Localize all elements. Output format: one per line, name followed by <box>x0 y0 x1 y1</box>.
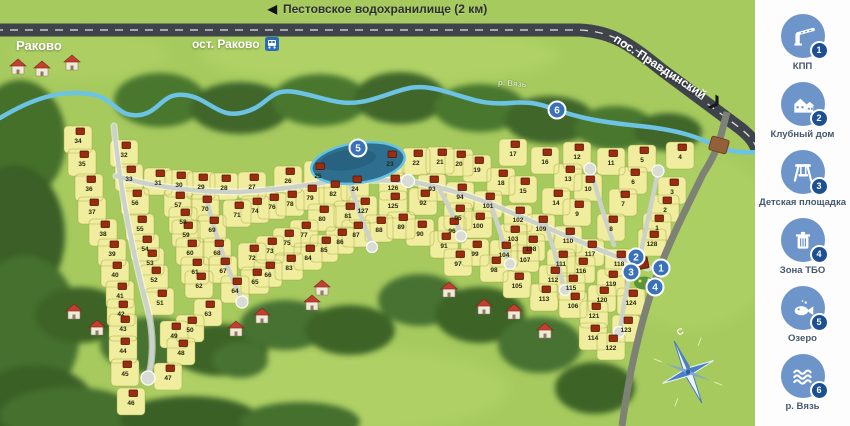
plot-house-icon-70 <box>203 196 212 203</box>
svg-text:5: 5 <box>355 144 361 155</box>
plot-house-icon-73 <box>268 238 277 245</box>
plot-number-81: 81 <box>344 213 352 220</box>
banner-text: Пестовское водохранилище (2 км) <box>283 2 487 16</box>
plot-number-64: 64 <box>231 288 239 295</box>
plot-number-19: 19 <box>473 167 481 174</box>
plot-house-icon-35 <box>80 151 89 158</box>
plot-number-125: 125 <box>388 203 399 210</box>
legend-icon-circle: 4 <box>781 218 825 262</box>
legend-sidebar: 1КПП2Клубный дом3Детская площадка4Зона Т… <box>755 0 850 426</box>
plot-number-8: 8 <box>609 226 613 233</box>
plot-house-icon-4 <box>678 144 687 151</box>
top-banner: ◀Пестовское водохранилище (2 км) <box>0 2 755 16</box>
legend-icon-circle: 5 <box>781 286 825 330</box>
plot-house-icon-24 <box>353 176 362 183</box>
plot-number-79: 79 <box>306 195 314 202</box>
plot-house-icon-95 <box>456 205 465 212</box>
plot-house-icon-84 <box>306 245 315 252</box>
plot-number-117: 117 <box>585 251 596 258</box>
plot-number-14: 14 <box>552 200 560 207</box>
plot-house-icon-50 <box>188 317 197 324</box>
plot-number-26: 26 <box>284 178 292 185</box>
legend-number-badge: 4 <box>810 245 829 264</box>
plot-house-icon-97 <box>456 251 465 258</box>
legend-item-6: 6р. Вязь <box>755 354 850 412</box>
plot-house-icon-66 <box>266 262 275 269</box>
plot-house-icon-75 <box>285 230 294 237</box>
plot-number-2: 2 <box>663 207 667 214</box>
plot-house-icon-115 <box>569 275 578 282</box>
plot-house-icon-36 <box>87 176 96 183</box>
plot-house-icon-103 <box>511 226 520 233</box>
village-label: Раково <box>16 38 62 53</box>
plot-number-17: 17 <box>509 151 517 158</box>
plot-house-icon-55 <box>138 216 147 223</box>
legend-number-badge: 1 <box>810 41 829 60</box>
plot-house-icon-99 <box>473 241 482 248</box>
plot-number-124: 124 <box>626 300 637 307</box>
plot-number-75: 75 <box>283 240 291 247</box>
legend-icon-circle: 3 <box>781 150 825 194</box>
plot-number-34: 34 <box>74 138 82 145</box>
plot-number-123: 123 <box>621 327 632 334</box>
plot-house-icon-122 <box>609 335 618 342</box>
plot-house-icon-76 <box>270 194 279 201</box>
plot-house-icon-117 <box>588 241 597 248</box>
plot-number-121: 121 <box>589 313 600 320</box>
map-marker-3[interactable]: 3 <box>623 264 640 281</box>
plot-house-icon-88 <box>377 217 386 224</box>
plot-house-icon-7 <box>621 191 630 198</box>
plot-number-67: 67 <box>219 268 227 275</box>
plot-number-47: 47 <box>164 375 172 382</box>
plot-house-icon-71 <box>235 202 244 209</box>
plot-number-106: 106 <box>568 303 579 310</box>
plot-number-24: 24 <box>351 186 359 193</box>
plot-house-icon-72 <box>250 245 259 252</box>
plot-number-10: 10 <box>584 186 592 193</box>
plot-house-icon-48 <box>179 340 188 347</box>
plot-number-13: 13 <box>564 176 572 183</box>
plot-number-49: 49 <box>170 333 178 340</box>
plot-number-55: 55 <box>136 226 144 233</box>
plot-house-icon-47 <box>166 365 175 372</box>
svg-text:1: 1 <box>658 264 664 275</box>
plot-house-icon-54 <box>143 236 152 243</box>
plot-number-72: 72 <box>248 255 256 262</box>
plot-house-icon-85 <box>322 237 331 244</box>
plot-house-icon-9 <box>575 201 584 208</box>
plot-number-120: 120 <box>597 297 608 304</box>
plot-house-icon-25 <box>316 163 325 170</box>
plot-number-52: 52 <box>150 277 158 284</box>
plot-house-icon-69 <box>210 217 219 224</box>
plot-number-103: 103 <box>508 236 519 243</box>
plot-house-icon-118 <box>617 251 626 258</box>
river-label: р. Вязь <box>498 78 527 89</box>
plot-house-icon-61 <box>193 259 202 266</box>
plot-number-7: 7 <box>621 201 625 208</box>
plot-number-127: 127 <box>358 208 369 215</box>
plot-number-29: 29 <box>197 184 205 191</box>
plot-number-105: 105 <box>512 283 523 290</box>
plot-house-icon-108 <box>529 236 538 243</box>
plot-number-31: 31 <box>154 180 162 187</box>
plot-house-icon-126 <box>391 175 400 182</box>
plot-house-icon-42 <box>119 301 128 308</box>
plot-house-icon-89 <box>399 214 408 221</box>
plot-number-33: 33 <box>125 176 133 183</box>
plot-number-46: 46 <box>127 400 135 407</box>
plot-number-59: 59 <box>182 232 190 239</box>
plot-number-28: 28 <box>220 185 228 192</box>
plot-number-9: 9 <box>575 211 579 218</box>
plot-house-icon-27 <box>250 174 259 181</box>
plot-house-icon-20 <box>457 151 466 158</box>
plot-number-95: 95 <box>454 215 462 222</box>
plot-number-90: 90 <box>416 231 424 238</box>
plot-number-113: 113 <box>539 296 550 303</box>
plot-number-71: 71 <box>233 212 241 219</box>
plot-number-54: 54 <box>141 246 149 253</box>
legend-item-2: 2Клубный дом <box>755 82 850 140</box>
plot-number-68: 68 <box>213 250 221 257</box>
legend-item-label: Зона ТБО <box>780 266 825 276</box>
legend-number-badge: 2 <box>810 109 829 128</box>
plot-number-36: 36 <box>85 186 93 193</box>
plot-number-53: 53 <box>146 260 154 267</box>
plot-house-icon-111 <box>559 251 568 258</box>
plot-number-22: 22 <box>412 160 420 167</box>
plot-house-icon-58 <box>181 209 190 216</box>
plot-number-65: 65 <box>251 279 259 286</box>
plot-house-icon-74 <box>253 198 262 205</box>
plot-number-11: 11 <box>608 160 615 167</box>
plot-number-98: 98 <box>490 267 498 274</box>
bus-stop-text: ост. Раково <box>192 37 260 51</box>
plot-number-107: 107 <box>520 257 531 264</box>
plot-number-122: 122 <box>606 345 617 352</box>
plot-number-119: 119 <box>606 281 617 288</box>
legend-item-5: 5Озеро <box>755 286 850 344</box>
plot-number-91: 91 <box>440 243 448 250</box>
plot-number-42: 42 <box>117 311 125 318</box>
plot-number-109: 109 <box>536 226 547 233</box>
plot-house-icon-40 <box>113 262 122 269</box>
plot-house-icon-110 <box>566 228 575 235</box>
plot-number-60: 60 <box>186 250 194 257</box>
plot-house-icon-2 <box>663 197 672 204</box>
plot-number-21: 21 <box>436 159 444 166</box>
plot-house-icon-125 <box>391 193 400 200</box>
plot-number-82: 82 <box>329 191 337 198</box>
plot-house-icon-3 <box>670 179 679 186</box>
plot-number-89: 89 <box>397 224 405 231</box>
plot-house-icon-94 <box>458 184 467 191</box>
plot-number-126: 126 <box>388 185 399 192</box>
plot-number-61: 61 <box>191 269 199 276</box>
plot-number-48: 48 <box>177 350 185 357</box>
plot-house-icon-123 <box>624 317 633 324</box>
plot-number-85: 85 <box>320 247 328 254</box>
plot-number-128: 128 <box>647 241 658 248</box>
svg-text:6: 6 <box>554 106 560 117</box>
plot-number-100: 100 <box>473 223 484 230</box>
plot-house-icon-51 <box>158 290 167 297</box>
legend-item-3: 3Детская площадка <box>755 150 850 208</box>
plot-number-25: 25 <box>314 173 322 180</box>
plot-number-92: 92 <box>419 200 427 207</box>
svg-text:2: 2 <box>633 253 639 264</box>
legend-icon-circle: 1 <box>781 14 825 58</box>
plot-number-40: 40 <box>111 272 119 279</box>
plot-number-43: 43 <box>119 326 127 333</box>
plot-number-23: 23 <box>386 161 394 168</box>
plot-number-114: 114 <box>588 335 599 342</box>
plot-house-icon-37 <box>90 199 99 206</box>
plot-house-icon-53 <box>148 250 157 257</box>
legend-icon-circle: 2 <box>781 82 825 126</box>
plot-number-73: 73 <box>266 248 274 255</box>
plot-number-78: 78 <box>286 201 294 208</box>
plot-house-icon-68 <box>215 240 224 247</box>
plot-house-icon-56 <box>133 190 142 197</box>
plot-house-icon-93 <box>430 176 439 183</box>
plot-number-112: 112 <box>548 277 559 284</box>
plot-number-86: 86 <box>336 239 344 246</box>
plot-house-icon-32 <box>122 142 131 149</box>
plot-house-icon-101 <box>486 193 495 200</box>
plot-number-76: 76 <box>268 204 276 211</box>
plot-number-56: 56 <box>131 200 139 207</box>
map-marker-4[interactable]: 4 <box>647 279 664 296</box>
plot-house-icon-78 <box>288 191 297 198</box>
plot-house-icon-31 <box>156 170 165 177</box>
legend-item-label: Озеро <box>788 334 817 344</box>
plot-number-41: 41 <box>116 293 124 300</box>
plot-house-icon-119 <box>609 271 618 278</box>
legend-number-badge: 6 <box>810 381 829 400</box>
plot-number-83: 83 <box>285 265 293 272</box>
plot-number-102: 102 <box>513 217 524 224</box>
plot-number-99: 99 <box>471 251 479 258</box>
plot-house-icon-86 <box>338 229 347 236</box>
legend-number-badge: 5 <box>810 313 829 332</box>
plot-house-icon-81 <box>346 203 355 210</box>
legend-item-1: 1КПП <box>755 14 850 72</box>
plot-house-icon-38 <box>101 221 110 228</box>
plot-number-88: 88 <box>375 227 383 234</box>
plot-house-icon-39 <box>110 241 119 248</box>
plot-number-38: 38 <box>99 231 107 238</box>
plot-house-icon-8 <box>609 216 618 223</box>
plot-house-icon-18 <box>499 170 508 177</box>
plot-house-icon-29 <box>199 174 208 181</box>
plot-house-icon-19 <box>475 157 484 164</box>
plot-house-icon-52 <box>152 267 161 274</box>
plot-number-35: 35 <box>78 161 86 168</box>
plot-house-icon-22 <box>414 150 423 157</box>
legend-item-4: 4Зона ТБО <box>755 218 850 276</box>
plot-number-77: 77 <box>300 232 308 239</box>
plot-number-70: 70 <box>201 206 209 213</box>
plot-house-icon-1 <box>655 215 664 222</box>
plot-number-45: 45 <box>121 371 129 378</box>
plot-number-15: 15 <box>519 188 527 195</box>
plot-number-93: 93 <box>428 186 436 193</box>
plot-house-icon-82 <box>331 181 340 188</box>
plot-house-icon-12 <box>575 144 584 151</box>
plot-number-110: 110 <box>563 238 574 245</box>
plot-house-icon-49 <box>172 323 181 330</box>
map-marker-1[interactable]: 1 <box>653 260 670 277</box>
plot-house-icon-79 <box>308 185 317 192</box>
svg-text:4: 4 <box>652 283 658 294</box>
plot-house-icon-60 <box>188 240 197 247</box>
plot-house-icon-17 <box>511 141 520 148</box>
plot-number-30: 30 <box>175 182 183 189</box>
plot-number-80: 80 <box>318 216 326 223</box>
map-canvas: 1234567891011121314151617181920212223242… <box>0 0 755 426</box>
plot-number-20: 20 <box>455 161 463 168</box>
plot-number-69: 69 <box>208 227 216 234</box>
legend-item-label: р. Вязь <box>785 402 819 412</box>
plot-number-18: 18 <box>497 180 505 187</box>
plot-house-icon-21 <box>438 149 447 156</box>
plot-house-icon-90 <box>418 221 427 228</box>
plot-number-51: 51 <box>156 300 164 307</box>
plot-number-27: 27 <box>248 184 256 191</box>
left-arrow-icon: ◀ <box>268 2 277 16</box>
plot-house-icon-11 <box>609 150 618 157</box>
plot-house-icon-15 <box>521 178 530 185</box>
plot-number-87: 87 <box>352 232 360 239</box>
plot-house-icon-57 <box>176 192 185 199</box>
plot-number-101: 101 <box>483 203 494 210</box>
plot-house-icon-87 <box>354 222 363 229</box>
plot-house-icon-26 <box>286 168 295 175</box>
plot-number-37: 37 <box>88 209 96 216</box>
legend-icon-circle: 6 <box>781 354 825 398</box>
plot-number-39: 39 <box>108 251 116 258</box>
bus-stop-icon <box>265 37 279 51</box>
plot-house-icon-44 <box>121 338 130 345</box>
legend-item-label: Клубный дом <box>771 130 835 140</box>
plot-number-66: 66 <box>264 272 272 279</box>
plot-house-icon-28 <box>222 175 231 182</box>
plot-number-63: 63 <box>204 311 212 318</box>
plot-house-icon-16 <box>543 149 552 156</box>
plot-house-icon-102 <box>516 207 525 214</box>
plot-house-icon-63 <box>206 301 215 308</box>
plot-number-4: 4 <box>678 154 682 161</box>
plot-number-44: 44 <box>119 348 127 355</box>
svg-text:3: 3 <box>628 268 634 279</box>
plot-house-icon-10 <box>586 176 595 183</box>
plot-number-94: 94 <box>456 194 464 201</box>
plot-number-58: 58 <box>179 219 187 226</box>
plot-house-icon-109 <box>539 216 548 223</box>
plot-number-6: 6 <box>631 179 635 186</box>
plot-number-108: 108 <box>526 246 537 253</box>
plot-house-icon-100 <box>476 213 485 220</box>
plot-number-16: 16 <box>541 159 549 166</box>
plot-number-84: 84 <box>304 255 312 262</box>
plot-number-32: 32 <box>120 152 128 159</box>
plot-house-icon-77 <box>302 222 311 229</box>
plot-number-12: 12 <box>573 154 581 161</box>
plot-house-icon-14 <box>554 190 563 197</box>
plot-house-icon-105 <box>515 273 524 280</box>
plot-house-icon-124 <box>629 290 638 297</box>
plot-house-icon-80 <box>320 206 329 213</box>
plot-number-74: 74 <box>251 208 259 215</box>
plot-house-icon-13 <box>566 166 575 173</box>
plot-house-icon-6 <box>631 169 640 176</box>
plot-number-97: 97 <box>454 261 462 268</box>
plot-house-icon-64 <box>233 278 242 285</box>
map-marker-6[interactable]: 6 <box>549 102 566 119</box>
plot-number-115: 115 <box>566 285 577 292</box>
plot-house-icon-116 <box>579 258 588 265</box>
plot-number-5: 5 <box>640 157 644 164</box>
plot-house-icon-5 <box>640 147 649 154</box>
plot-number-50: 50 <box>186 327 194 334</box>
plot-house-icon-45 <box>123 361 132 368</box>
plot-house-icon-127 <box>361 198 370 205</box>
plot-house-icon-46 <box>129 390 138 397</box>
legend-item-label: КПП <box>793 62 812 72</box>
plot-number-62: 62 <box>195 283 203 290</box>
plot-number-57: 57 <box>174 202 182 209</box>
plot-house-icon-114 <box>591 325 600 332</box>
plot-house-icon-65 <box>253 269 262 276</box>
plot-number-104: 104 <box>499 252 510 259</box>
plot-house-icon-30 <box>177 172 186 179</box>
legend-number-badge: 3 <box>810 177 829 196</box>
plot-number-1: 1 <box>655 225 659 232</box>
map-marker-5[interactable]: 5 <box>350 140 367 157</box>
plot-house-icon-67 <box>221 258 230 265</box>
plot-house-icon-83 <box>287 255 296 262</box>
plot-number-96: 96 <box>448 228 456 235</box>
settlement-map-page: 1234567891011121314151617181920212223242… <box>0 0 850 426</box>
plot-house-icon-41 <box>118 283 127 290</box>
bus-stop-label: ост. Раково <box>192 37 279 51</box>
plot-number-111: 111 <box>556 261 567 268</box>
plot-house-icon-113 <box>542 286 551 293</box>
plot-number-3: 3 <box>670 189 674 196</box>
legend-item-label: Детская площадка <box>759 198 846 208</box>
plot-house-icon-23 <box>388 151 397 158</box>
plot-house-icon-106 <box>571 293 580 300</box>
plot-house-icon-34 <box>76 128 85 135</box>
plot-house-icon-33 <box>127 166 136 173</box>
plot-number-116: 116 <box>576 268 587 275</box>
